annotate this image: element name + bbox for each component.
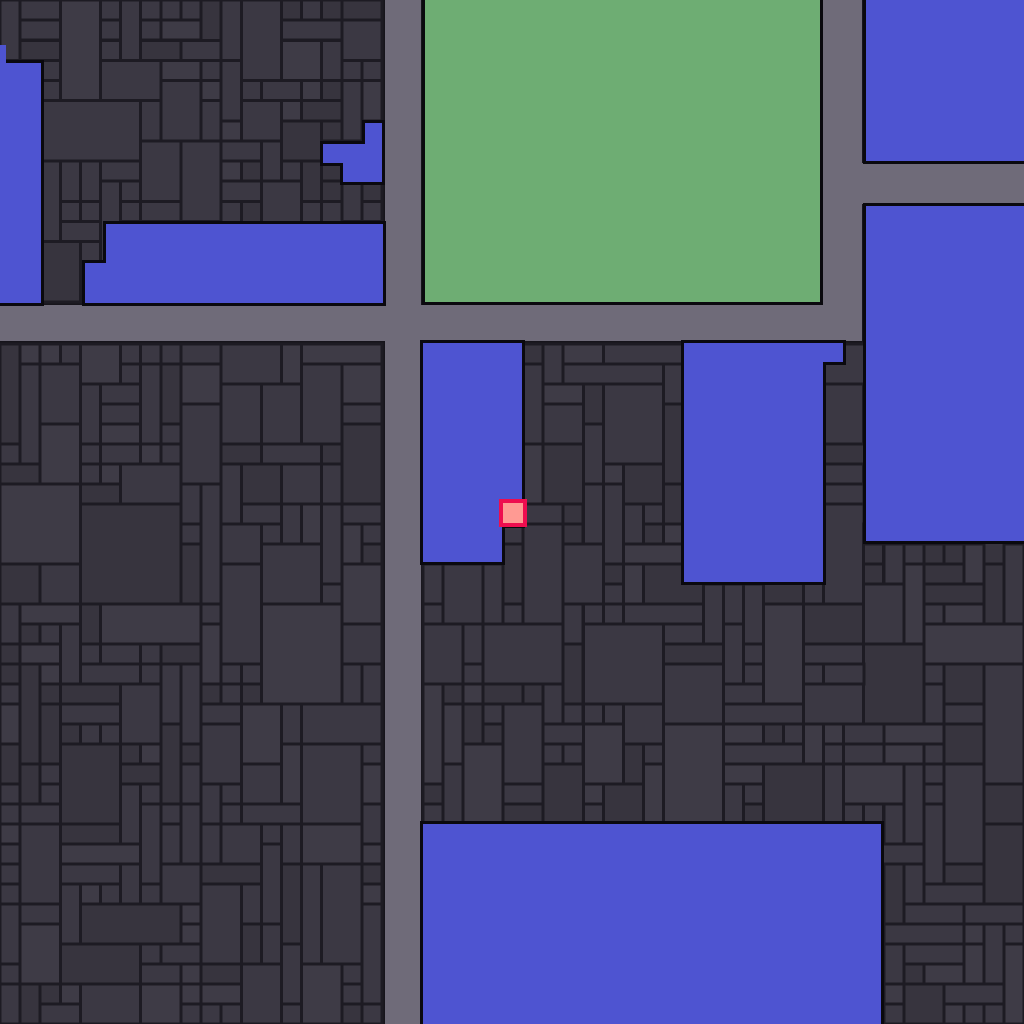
city-lot [423,604,443,624]
city-lot [101,644,141,664]
city-lot [804,644,864,664]
city-lot [603,564,623,584]
green-zone-park-area [425,0,820,302]
city-lot [40,424,80,484]
city-lot [924,964,964,984]
city-lot [181,484,201,524]
city-lot [322,864,362,964]
city-lot [20,624,40,644]
city-lot [362,844,382,864]
city-lot [0,964,20,984]
city-lot [241,101,281,141]
city-lot [884,1004,904,1024]
blue-zone-northwest-small-area [323,144,343,163]
city-lot [201,724,241,784]
city-lot [221,0,241,60]
city-lot [201,1004,221,1024]
city-lot [161,424,181,444]
city-lot [563,344,603,364]
city-lot [181,1004,201,1024]
city-lot [141,644,161,664]
city-lot [282,944,302,1004]
city-lot [0,604,20,644]
city-lot [101,60,161,100]
city-lot [764,764,824,824]
city-lot [261,524,281,544]
city-lot [824,744,844,764]
city-lot [101,404,141,424]
city-lot [121,764,161,784]
city-lot [744,784,764,804]
city-lot [503,544,523,604]
city-lot [201,101,221,141]
city-lot [423,784,443,804]
city-lot [322,0,342,20]
city-lot [20,364,40,464]
city-lot [261,444,321,464]
city-lot [362,81,382,121]
city-lot [362,864,382,884]
city-lot [543,444,583,504]
city-lot [282,824,302,864]
city-lot [1004,544,1024,624]
city-lot [241,964,281,1024]
city-lot [362,544,382,564]
city-lot [80,644,100,664]
city-lot [80,604,100,644]
city-lot [302,504,322,544]
city-lot [322,121,342,141]
city-lot [864,584,904,644]
city-lot [221,464,241,524]
city-lot [423,564,443,604]
city-lot [342,624,382,664]
city-lot [884,864,904,924]
blue-zone-center-west-area [423,525,502,562]
city-lot [483,564,503,624]
city-lot [362,804,382,844]
city-lot [804,724,824,764]
city-lot [141,804,161,884]
city-lot [221,664,241,684]
city-lot [0,864,20,884]
city-lot [60,684,120,704]
city-lot [744,644,764,664]
city-lot [20,0,60,20]
city-lot [964,1004,984,1024]
blue-zone-northwest-area [106,224,383,303]
city-lot [241,0,281,81]
city-lot [864,644,924,724]
city-lot [543,684,563,724]
city-lot [0,844,20,864]
city-lot [583,424,603,484]
city-lot [984,564,1004,624]
city-lot [221,524,261,564]
city-lot [282,0,302,20]
city-lot [282,504,302,544]
city-lot [563,504,583,524]
city-lot [121,864,141,904]
city-lot [744,584,764,644]
city-lot [643,744,663,764]
city-lot [583,484,603,544]
blue-zone-northwest-small-area [343,144,365,182]
city-lot [282,121,322,161]
city-lot [824,664,864,684]
city-lot [1004,944,1024,1024]
city-lot [603,344,683,364]
city-lot [944,764,984,864]
city-lot [161,724,181,804]
city-lot [443,564,483,624]
city-lot [302,864,322,964]
city-lot [40,684,60,704]
city-lot [60,864,120,884]
city-lot [181,364,221,404]
city-lot [362,744,382,764]
city-lot [161,364,181,424]
city-lot [944,704,984,724]
city-lot [302,364,342,444]
city-lot [161,944,201,964]
city-lot [302,81,322,101]
blue-zone-west-strip-area [0,45,6,65]
city-lot [904,544,924,564]
city-lot [603,604,623,624]
city-lot [724,684,764,704]
city-lot [60,161,80,201]
selection-cursor[interactable] [501,501,525,525]
city-lot [543,724,583,744]
city-lot [261,824,281,844]
app-root [0,0,1024,1024]
city-lot [0,744,20,784]
city-lot [583,604,603,624]
city-lot [261,81,301,101]
city-lot [463,744,503,824]
city-lot [101,424,141,444]
city-lot [643,504,663,524]
city-lot [463,684,483,704]
city-lot [282,101,302,121]
city-lot [60,704,120,724]
city-lot [201,684,221,704]
city-lot [322,81,342,101]
city-lot [221,60,241,120]
city-lot [483,724,503,744]
city-lot [60,844,140,864]
city-lot [0,784,20,804]
city-lot [924,664,944,684]
city-lot [221,344,281,384]
city-lot [563,604,583,644]
city-lot [161,824,181,864]
city-lot [864,544,884,564]
city-lot [603,784,643,824]
city-lot [0,664,20,684]
city-lot [40,1004,80,1024]
city-lot [724,724,764,744]
city-lot [0,904,20,964]
city-lot [241,504,281,524]
city-lot [543,404,583,444]
city-lot [141,444,161,464]
city-lot [80,504,180,604]
city-lot [141,141,181,201]
city-lot [261,384,301,444]
city-lot [904,944,964,964]
city-lot [583,384,603,424]
city-lot [201,604,221,624]
city-lot [724,584,744,624]
city-lot [181,744,201,764]
city-lot [221,564,261,664]
city-lot [60,944,140,984]
city-lot [663,664,723,724]
city-lot [40,764,60,784]
city-lot [804,664,824,684]
city-lot [583,784,603,804]
blue-zone-west-strip [0,45,41,303]
city-lot [40,704,60,764]
city-lot [623,744,643,784]
city-lot [60,201,80,221]
city-lot [984,1004,1004,1024]
city-lot [241,684,261,704]
city-lot [342,0,382,20]
city-lot [663,364,683,404]
city-lot [924,564,964,584]
city-lot [302,704,382,744]
city-lot [261,924,281,964]
city-lot [241,884,261,924]
city-lot [423,684,443,784]
city-lot [282,161,302,181]
blue-zone-east-large [866,206,1024,541]
blue-zone-northwest-small-area [365,123,382,182]
city-lot [0,464,40,484]
city-lot [141,101,161,141]
city-lot [964,544,984,584]
city-lot [362,764,382,804]
city-lot [181,40,221,60]
city-lot [80,444,100,464]
city-lot [121,344,141,364]
city-lot [523,364,543,444]
city-lot [80,161,100,201]
city-lot [984,924,1004,984]
city-lot [0,564,40,604]
city-lot [20,40,60,60]
city-lot [221,684,241,704]
blue-zone-south-large [423,824,881,1024]
city-lot [362,201,382,221]
city-lot [824,504,864,604]
city-lot [141,344,161,364]
city-lot [483,704,503,724]
city-lot [302,344,382,364]
city-lot [101,0,121,20]
city-lot [20,804,60,824]
road-horizontal-main [0,305,862,341]
city-lot [60,884,80,944]
city-lot [302,744,362,824]
city-lot [101,161,141,181]
city-lot [984,824,1024,904]
city-lot [221,1004,241,1024]
road-vertical-main [385,0,421,1024]
city-lot [161,20,201,40]
city-lot [944,864,984,884]
city-lot [764,724,784,744]
city-lot [282,464,322,504]
city-lot [884,984,904,1004]
city-lot [80,984,140,1024]
city-lot [744,664,764,684]
city-lot [181,984,201,1004]
city-lot [483,624,563,684]
city-lot [261,141,281,181]
city-lot [503,704,543,784]
city-lot [221,121,241,141]
city-lot [904,964,924,984]
city-lot [342,20,382,60]
city-lot [80,484,120,504]
city-lot [40,564,80,604]
city-lot [463,624,483,664]
city-lot [342,404,382,424]
city-lot [603,484,623,564]
city-lot [101,464,121,484]
city-lot [121,684,161,744]
city-lot [463,664,483,684]
city-lot [342,60,362,80]
city-lot [241,664,261,684]
city-lot [523,524,563,624]
blue-zone-center-area [823,343,843,362]
city-lot [623,704,663,744]
city-lot [241,161,261,181]
city-lot [663,724,723,824]
city-lot [241,81,261,101]
city-lot [342,664,362,704]
city-lot [463,704,483,744]
city-lot [60,0,100,101]
city-lot [181,764,201,804]
city-lot [0,804,20,824]
city-lot [623,504,643,544]
city-lot [362,664,382,704]
city-lot [924,604,944,624]
city-lot [20,604,80,624]
city-lot [201,0,221,40]
city-lot [904,984,944,1024]
city-lot [0,644,20,664]
city-lot [241,924,261,964]
city-lot [302,0,322,20]
city-lot [322,181,342,201]
city-lot [924,624,1024,664]
blue-zone-northeast-area [866,0,1024,161]
city-lot [101,444,141,464]
city-lot [563,524,583,544]
city-lot [141,201,181,221]
city-lot [141,364,161,444]
city-lot [543,384,583,404]
city-lot [503,784,543,804]
city-lot [181,544,201,604]
city-lot [984,784,1024,824]
city-lot [944,664,984,704]
city-lot [724,764,764,784]
city-lot [1004,924,1024,944]
city-lot [201,884,241,964]
city-lot [181,524,201,544]
city-lot [221,784,241,804]
city-lot [20,984,40,1024]
city-lot [342,424,382,504]
city-lot [904,904,964,924]
city-lot [322,444,342,464]
city-lot [543,744,563,764]
city-lot [261,844,281,924]
city-lot [201,824,221,864]
city-lot [924,804,944,884]
city-lot [101,384,141,404]
city-lot [161,344,181,364]
city-lot [181,404,221,484]
city-lot [80,884,100,904]
city-lot [80,664,140,684]
city-lot [80,344,120,384]
city-lot [101,604,202,644]
city-lot [623,464,663,504]
city-lot [261,544,321,604]
city-lot [884,944,904,984]
city-lot [241,704,281,764]
city-lot [964,944,984,984]
city-lot [663,524,683,544]
city-lot [884,924,964,944]
city-map-canvas[interactable] [0,0,1024,1024]
city-lot [342,984,362,1004]
city-lot [964,904,1024,924]
blue-zone-west-strip-area [0,63,41,303]
city-lot [101,40,121,60]
city-lot [302,101,342,121]
green-zone-park [425,0,820,302]
city-lot [724,744,804,764]
city-lot [924,684,944,724]
city-lot [20,344,40,364]
city-lot [161,804,181,824]
blue-zone-northwest [85,224,383,303]
city-lot [241,764,281,804]
city-lot [944,984,1004,1004]
city-lot [0,984,20,1024]
block-southwest [0,344,382,1024]
city-lot [80,384,100,444]
city-lot [20,20,60,40]
city-lot [603,464,623,484]
city-lot [944,1004,964,1024]
city-lot [121,181,141,201]
city-lot [241,464,281,504]
city-lot [322,504,342,584]
city-lot [904,864,924,904]
city-lot [181,344,221,364]
